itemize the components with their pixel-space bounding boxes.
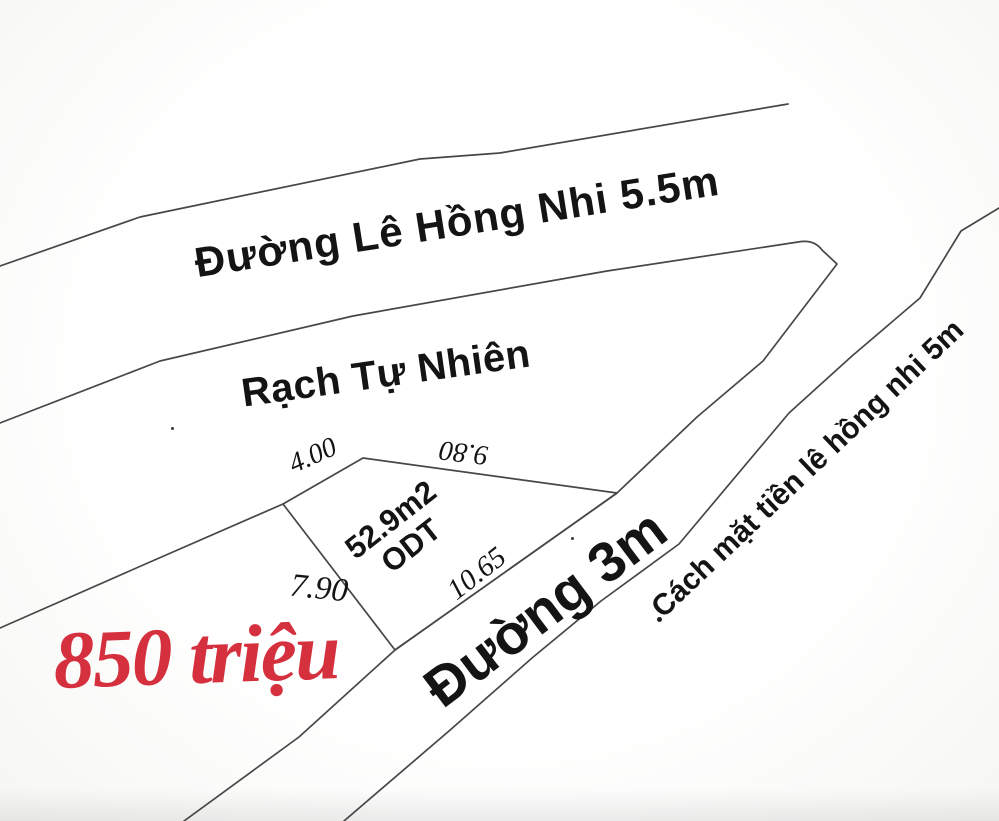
land-plot-sketch: Đường Lê Hồng Nhi 5.5m Rạch Tự Nhiên Đườ… xyxy=(0,0,999,821)
scan-speck xyxy=(571,537,574,540)
scan-speck xyxy=(171,427,174,430)
price-label: 850 triệu xyxy=(52,604,340,708)
dimension-top-right-flipped: 9.80 xyxy=(438,433,491,471)
